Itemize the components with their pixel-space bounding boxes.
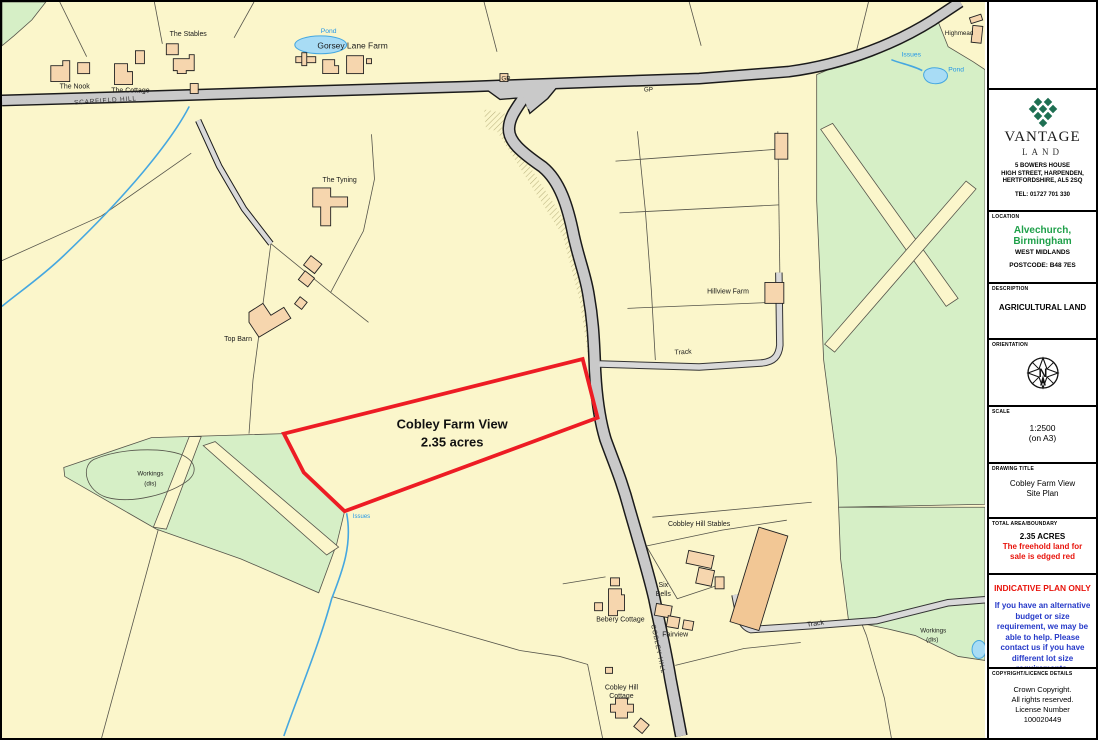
orientation-section-label: ORIENTATION (992, 342, 1028, 348)
location-city: Alvechurch, (989, 225, 1096, 236)
brand-subname: LAND (989, 147, 1096, 157)
title-section-label: DRAWING TITLE (992, 466, 1034, 472)
label-the-stables: The Stables (170, 31, 208, 38)
label-workings-west: Workings (137, 470, 163, 477)
vantage-land-logo-icon (1027, 99, 1059, 127)
label-workings-west-dis: (dis) (144, 480, 156, 487)
indicative-plan-section: INDICATIVE PLAN ONLY If you have an alte… (989, 573, 1096, 667)
site-plan-document: SCARFIELD HILL GP GP The Stables Pond Go… (0, 0, 1098, 740)
info-panel: VANTAGE LAND 5 BOWERS HOUSE HIGH STREET,… (987, 2, 1096, 738)
copyright-line: License Number (989, 705, 1096, 715)
label-cobley-hill-cottage-2: Cottage (609, 693, 634, 700)
label-the-tyning: The Tyning (322, 177, 356, 184)
label-issues-mid: Issues (353, 514, 370, 520)
land-type-value: AGRICULTURAL LAND (989, 303, 1096, 312)
gp-label-east: GP (644, 87, 653, 94)
copyright-line: 100020449 (989, 715, 1096, 725)
panel-spacer (989, 2, 1096, 88)
total-acreage: 2.35 ACRES (989, 532, 1096, 541)
pond-ne (924, 68, 948, 84)
scale-section-label: SCALE (992, 409, 1010, 415)
label-highmead: Highmead (945, 30, 974, 37)
brand-name: VANTAGE (989, 129, 1096, 146)
gp-label-west: GP (501, 76, 510, 83)
north-arrow-icon: N (1023, 353, 1063, 393)
drawing-title-line1: Cobley Farm View (989, 479, 1096, 489)
brand-address: 5 BOWERS HOUSE HIGH STREET, HARPENDEN, H… (989, 163, 1096, 186)
label-hillview-farm: Hillview Farm (707, 288, 749, 295)
scale-section: SCALE 1:2500 (on A3) (989, 405, 1096, 462)
indicative-plan-body: If you have an alternative budget or siz… (989, 601, 1096, 667)
label-bells: Bells (656, 591, 672, 598)
scale-ratio: 1:2500 (989, 423, 1096, 433)
description-section-label: DESCRIPTION (992, 286, 1028, 292)
site-plan-map: SCARFIELD HILL GP GP The Stables Pond Go… (2, 2, 985, 738)
location-region: WEST MIDLANDS (989, 249, 1096, 256)
plot-area-label: 2.35 acres (421, 435, 484, 450)
plot-name-label: Cobley Farm View (397, 417, 509, 432)
area-section-label: TOTAL AREA/BOUNDARY (992, 521, 1057, 527)
map-area: SCARFIELD HILL GP GP The Stables Pond Go… (2, 2, 985, 738)
brand-telephone: TEL: 01727 701 330 (989, 192, 1096, 198)
label-track-mid: Track (674, 349, 692, 357)
label-cobley-hill-cottage-1: Cobley Hill (605, 684, 639, 691)
orientation-section: ORIENTATION N (989, 338, 1096, 405)
label-the-nook: The Nook (60, 84, 91, 91)
location-section: LOCATION Alvechurch, Birmingham WEST MID… (989, 210, 1096, 282)
label-top-barn: Top Barn (224, 336, 252, 343)
label-issues-ne: Issues (902, 52, 922, 59)
indicative-plan-heading: INDICATIVE PLAN ONLY (989, 583, 1096, 593)
scale-paper-size: (on A3) (989, 433, 1096, 443)
title-section: DRAWING TITLE Cobley Farm View Site Plan (989, 462, 1096, 517)
copyright-line: All rights reserved. (989, 695, 1096, 705)
label-cobbley-hill-stables: Cobbley Hill Stables (668, 521, 731, 528)
compass-n-letter: N (1038, 366, 1047, 380)
label-pond-nw: Pond (321, 28, 337, 35)
copyright-line: Crown Copyright. (989, 685, 1096, 695)
label-fairview: Fairview (662, 632, 689, 639)
area-section: TOTAL AREA/BOUNDARY 2.35 ACRES The freeh… (989, 517, 1096, 573)
address-line: HERTFORDSHIRE, AL5 2SQ (989, 178, 1096, 186)
address-line: 5 BOWERS HOUSE (989, 163, 1096, 171)
copyright-section: COPYRIGHT/LICENCE DETAILS Crown Copyrigh… (989, 667, 1096, 738)
drawing-title-line2: Site Plan (989, 489, 1096, 499)
location-postcode: POSTCODE: B48 7ES (989, 262, 1096, 269)
description-section: DESCRIPTION AGRICULTURAL LAND (989, 282, 1096, 338)
label-bebery-cottage: Bebery Cottage (596, 617, 644, 624)
label-workings-se: Workings (920, 628, 946, 635)
label-six: Six (658, 582, 668, 589)
label-gorsey-lane-farm: Gorsey Lane Farm (317, 41, 387, 51)
label-workings-se-dis: (dis) (926, 637, 938, 644)
label-pond-ne: Pond (948, 67, 964, 74)
address-line: HIGH STREET, HARPENDEN, (989, 171, 1096, 179)
location-section-label: LOCATION (992, 214, 1019, 220)
red-boundary-note: The freehold land for sale is edged red (989, 541, 1096, 561)
label-the-cottage: The Cottage (111, 88, 149, 95)
pond-se (972, 641, 985, 659)
brand-section: VANTAGE LAND 5 BOWERS HOUSE HIGH STREET,… (989, 88, 1096, 210)
copyright-section-label: COPYRIGHT/LICENCE DETAILS (992, 671, 1072, 677)
location-city2: Birmingham (989, 236, 1096, 247)
